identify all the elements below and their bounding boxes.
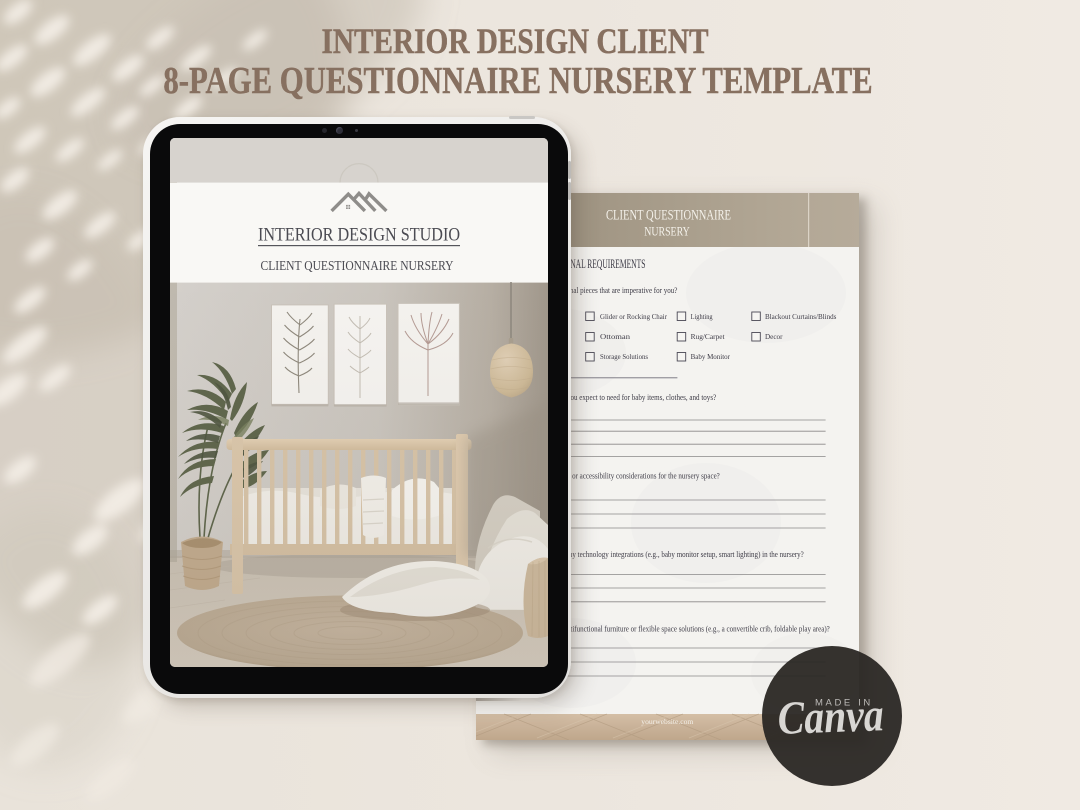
svg-text:Blackout Curtains/Blinds: Blackout Curtains/Blinds: [765, 312, 836, 321]
svg-text:Decor: Decor: [765, 332, 783, 341]
svg-text:INTERIOR DESIGN STUDIO: INTERIOR DESIGN STUDIO: [258, 225, 460, 246]
svg-text:Rug/Carpet: Rug/Carpet: [691, 332, 726, 341]
svg-text:Canva: Canva: [777, 689, 885, 745]
svg-text:CLIENT QUESTIONNAIRE: CLIENT QUESTIONNAIRE: [606, 208, 731, 224]
svg-text:Ottoman: Ottoman: [600, 332, 630, 341]
svg-text:Baby Monitor: Baby Monitor: [691, 352, 731, 361]
svg-text:yourwebsite.com: yourwebsite.com: [641, 717, 693, 726]
svg-text:Storage Solutions: Storage Solutions: [600, 352, 648, 361]
svg-text:Glider or Rocking Chair: Glider or Rocking Chair: [600, 312, 667, 321]
svg-text:NURSERY: NURSERY: [644, 224, 690, 238]
svg-text:CLIENT QUESTIONNAIRE NURSERY: CLIENT QUESTIONNAIRE NURSERY: [260, 258, 453, 273]
svg-text:Lighting: Lighting: [691, 312, 713, 321]
